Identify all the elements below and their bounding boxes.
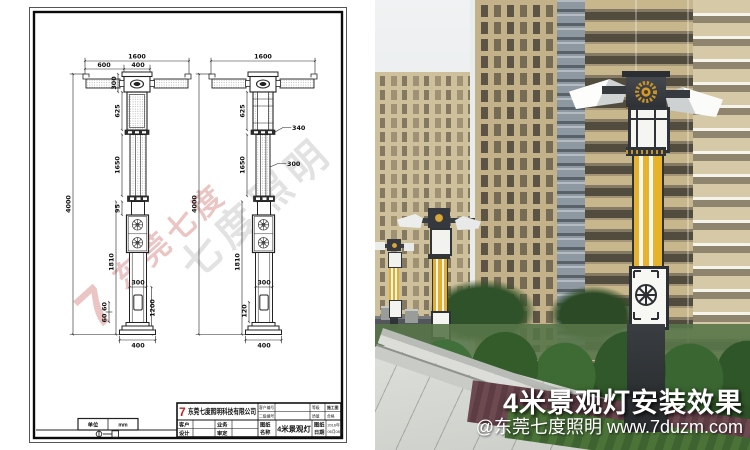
dim-total-width: 1600: [128, 53, 146, 61]
lamp-shade: [455, 216, 481, 230]
drawing-name-value: 4米景观灯: [277, 425, 311, 434]
dim-neck: 95: [114, 204, 122, 213]
building-right-edge: [693, 0, 750, 335]
watermark-credit: @东莞七度照明 www.7duzm.com: [476, 413, 743, 439]
lamp-arm-left: [602, 86, 629, 94]
design-label: 设计: [179, 429, 190, 437]
dim-total-width-2: 1600: [254, 53, 272, 61]
quality-value: 合格: [327, 414, 335, 419]
dim-upper-2: 625: [239, 104, 247, 117]
company-name: 东莞七度照明科技有限公司: [188, 407, 256, 416]
drawing-name-label-2: 名称: [260, 428, 271, 436]
medallion-icon: [633, 79, 659, 105]
dim-shaft-w-2: 300: [257, 279, 271, 287]
client-no-label: 客户编号: [259, 405, 274, 410]
dim-total-h-2: 4000: [191, 195, 199, 213]
quality-label: 质量: [312, 414, 320, 419]
dim-lower: 1810: [108, 253, 116, 271]
drawing-name-label-1: 图纸: [260, 421, 271, 429]
dim-step-b: 60: [101, 313, 109, 322]
medallion-icon: [435, 214, 443, 222]
dim-lower-2: 1810: [234, 253, 242, 271]
project-no-label: 二级编号: [259, 414, 274, 419]
dim-shaft-w: 300: [131, 279, 145, 287]
dim-arm: 600: [97, 61, 111, 69]
company-logo: 7: [179, 405, 186, 419]
drawing-date-value-2: 06月08日: [328, 429, 344, 434]
grade-label: 等级: [312, 405, 320, 410]
lamp-arm-right: [663, 90, 690, 98]
unit-label: 单位: [88, 421, 99, 429]
dim-step-a: 60: [101, 302, 109, 311]
dim-total-h: 4000: [65, 195, 73, 213]
dim-mid: 1650: [114, 156, 122, 174]
cad-sheet: 7 东莞七度 七度照明 1600 600: [0, 0, 375, 450]
installation-photo: 4米景观灯安装效果 @东莞七度照明 www.7duzm.com: [375, 0, 750, 450]
lamp-shade: [397, 214, 423, 228]
unit-box: 单位 mm: [78, 419, 138, 438]
screenshot: 7 东莞七度 七度照明 1600 600: [0, 0, 750, 450]
client-label: 客户: [178, 421, 189, 429]
projection-symbol: [96, 431, 118, 438]
dim-door: 120: [241, 304, 249, 318]
drawing-date-value-1: 2016年: [328, 423, 340, 428]
medallion-icon: [392, 243, 397, 248]
lamp-shade: [375, 242, 385, 250]
dim-cap: 340: [292, 124, 306, 132]
business-label: 业务: [217, 421, 228, 429]
lamp-head: [428, 208, 450, 228]
dim-head-h: 300: [110, 76, 118, 90]
lamp-lantern: [430, 228, 452, 256]
unit-value: mm: [118, 423, 128, 429]
lamp-head: [626, 77, 666, 109]
dim-mid-2: 1650: [239, 156, 247, 174]
approve-label: 审定: [217, 429, 228, 437]
lamp-column: [432, 259, 448, 311]
dim-base-w-2: 400: [257, 342, 271, 350]
dim-mid-w: 300: [287, 160, 301, 168]
cad-drawing: 7 东莞七度 七度照明 1600 600: [0, 0, 375, 450]
title-block: 7 东莞七度照明科技有限公司 客户编号 二级编号 等级 质量 施工图 合格: [177, 403, 344, 437]
grade-value: 施工图: [327, 405, 339, 410]
drawing-date-label-1: 图纸: [314, 421, 325, 429]
drawing-date-label-2: 日期: [314, 428, 324, 436]
dim-head-w: 400: [131, 61, 145, 69]
lattice-pattern: [632, 269, 660, 321]
dim-upper: 625: [114, 104, 122, 117]
dim-base-h: 1200: [149, 299, 157, 317]
lamp-column: [632, 156, 664, 268]
lamp-lattice: [629, 266, 669, 330]
lamp-band: [626, 147, 666, 156]
dim-base-w: 400: [131, 342, 145, 350]
